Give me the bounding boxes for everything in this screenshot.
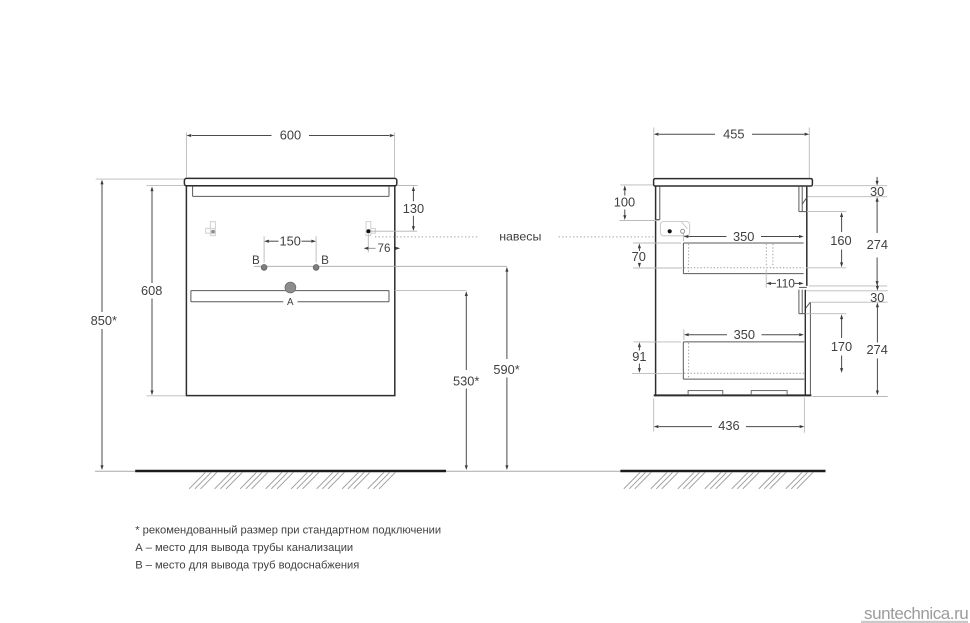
svg-text:110: 110	[776, 277, 795, 291]
svg-text:30: 30	[870, 184, 884, 199]
svg-text:130: 130	[403, 201, 424, 216]
svg-text:A: A	[287, 297, 294, 308]
svg-text:* рекомендованный размер при с: * рекомендованный размер при стандартном…	[135, 524, 441, 536]
svg-text:160: 160	[830, 233, 851, 248]
svg-text:70: 70	[632, 249, 646, 264]
svg-text:350: 350	[734, 327, 755, 342]
svg-text:274: 274	[867, 342, 888, 357]
svg-text:30: 30	[870, 290, 884, 305]
svg-text:suntechnica.ru: suntechnica.ru	[864, 604, 968, 623]
svg-text:350: 350	[733, 229, 754, 244]
svg-text:B: B	[321, 254, 329, 267]
svg-text:850*: 850*	[91, 313, 117, 328]
svg-text:навесы: навесы	[499, 229, 541, 243]
svg-text:170: 170	[831, 339, 852, 354]
svg-text:В – место для вывода труб водо: В – место для вывода труб водоснабжения	[135, 560, 359, 572]
svg-text:590*: 590*	[493, 362, 519, 377]
svg-text:100: 100	[614, 194, 635, 209]
svg-text:274: 274	[867, 237, 888, 252]
svg-text:530*: 530*	[453, 373, 479, 388]
svg-text:455: 455	[723, 127, 744, 142]
svg-text:91: 91	[632, 349, 646, 364]
svg-text:76: 76	[378, 242, 391, 255]
svg-text:436: 436	[718, 418, 739, 433]
svg-text:608: 608	[141, 283, 162, 298]
svg-text:А – место для вывода трубы кан: А – место для вывода трубы канализации	[135, 542, 353, 554]
svg-text:B: B	[252, 254, 260, 267]
svg-text:600: 600	[280, 128, 301, 143]
svg-text:150: 150	[280, 233, 301, 248]
